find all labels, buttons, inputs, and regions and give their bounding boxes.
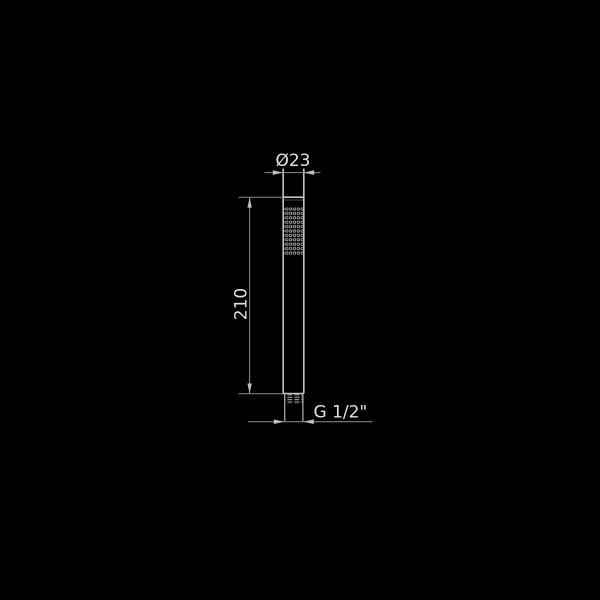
thread-dim-label: G 1/2" bbox=[314, 403, 368, 423]
spray-face-texture bbox=[284, 208, 303, 256]
thread-hatch bbox=[285, 394, 303, 404]
drawing-background bbox=[0, 0, 600, 600]
height-dim-label: 210 bbox=[232, 288, 252, 320]
handshower-technical-drawing: Ø23 210 G 1/2" bbox=[0, 0, 600, 600]
diameter-dim-label: Ø23 bbox=[275, 151, 310, 171]
drawing-canvas: Ø23 210 G 1/2" bbox=[0, 0, 600, 600]
